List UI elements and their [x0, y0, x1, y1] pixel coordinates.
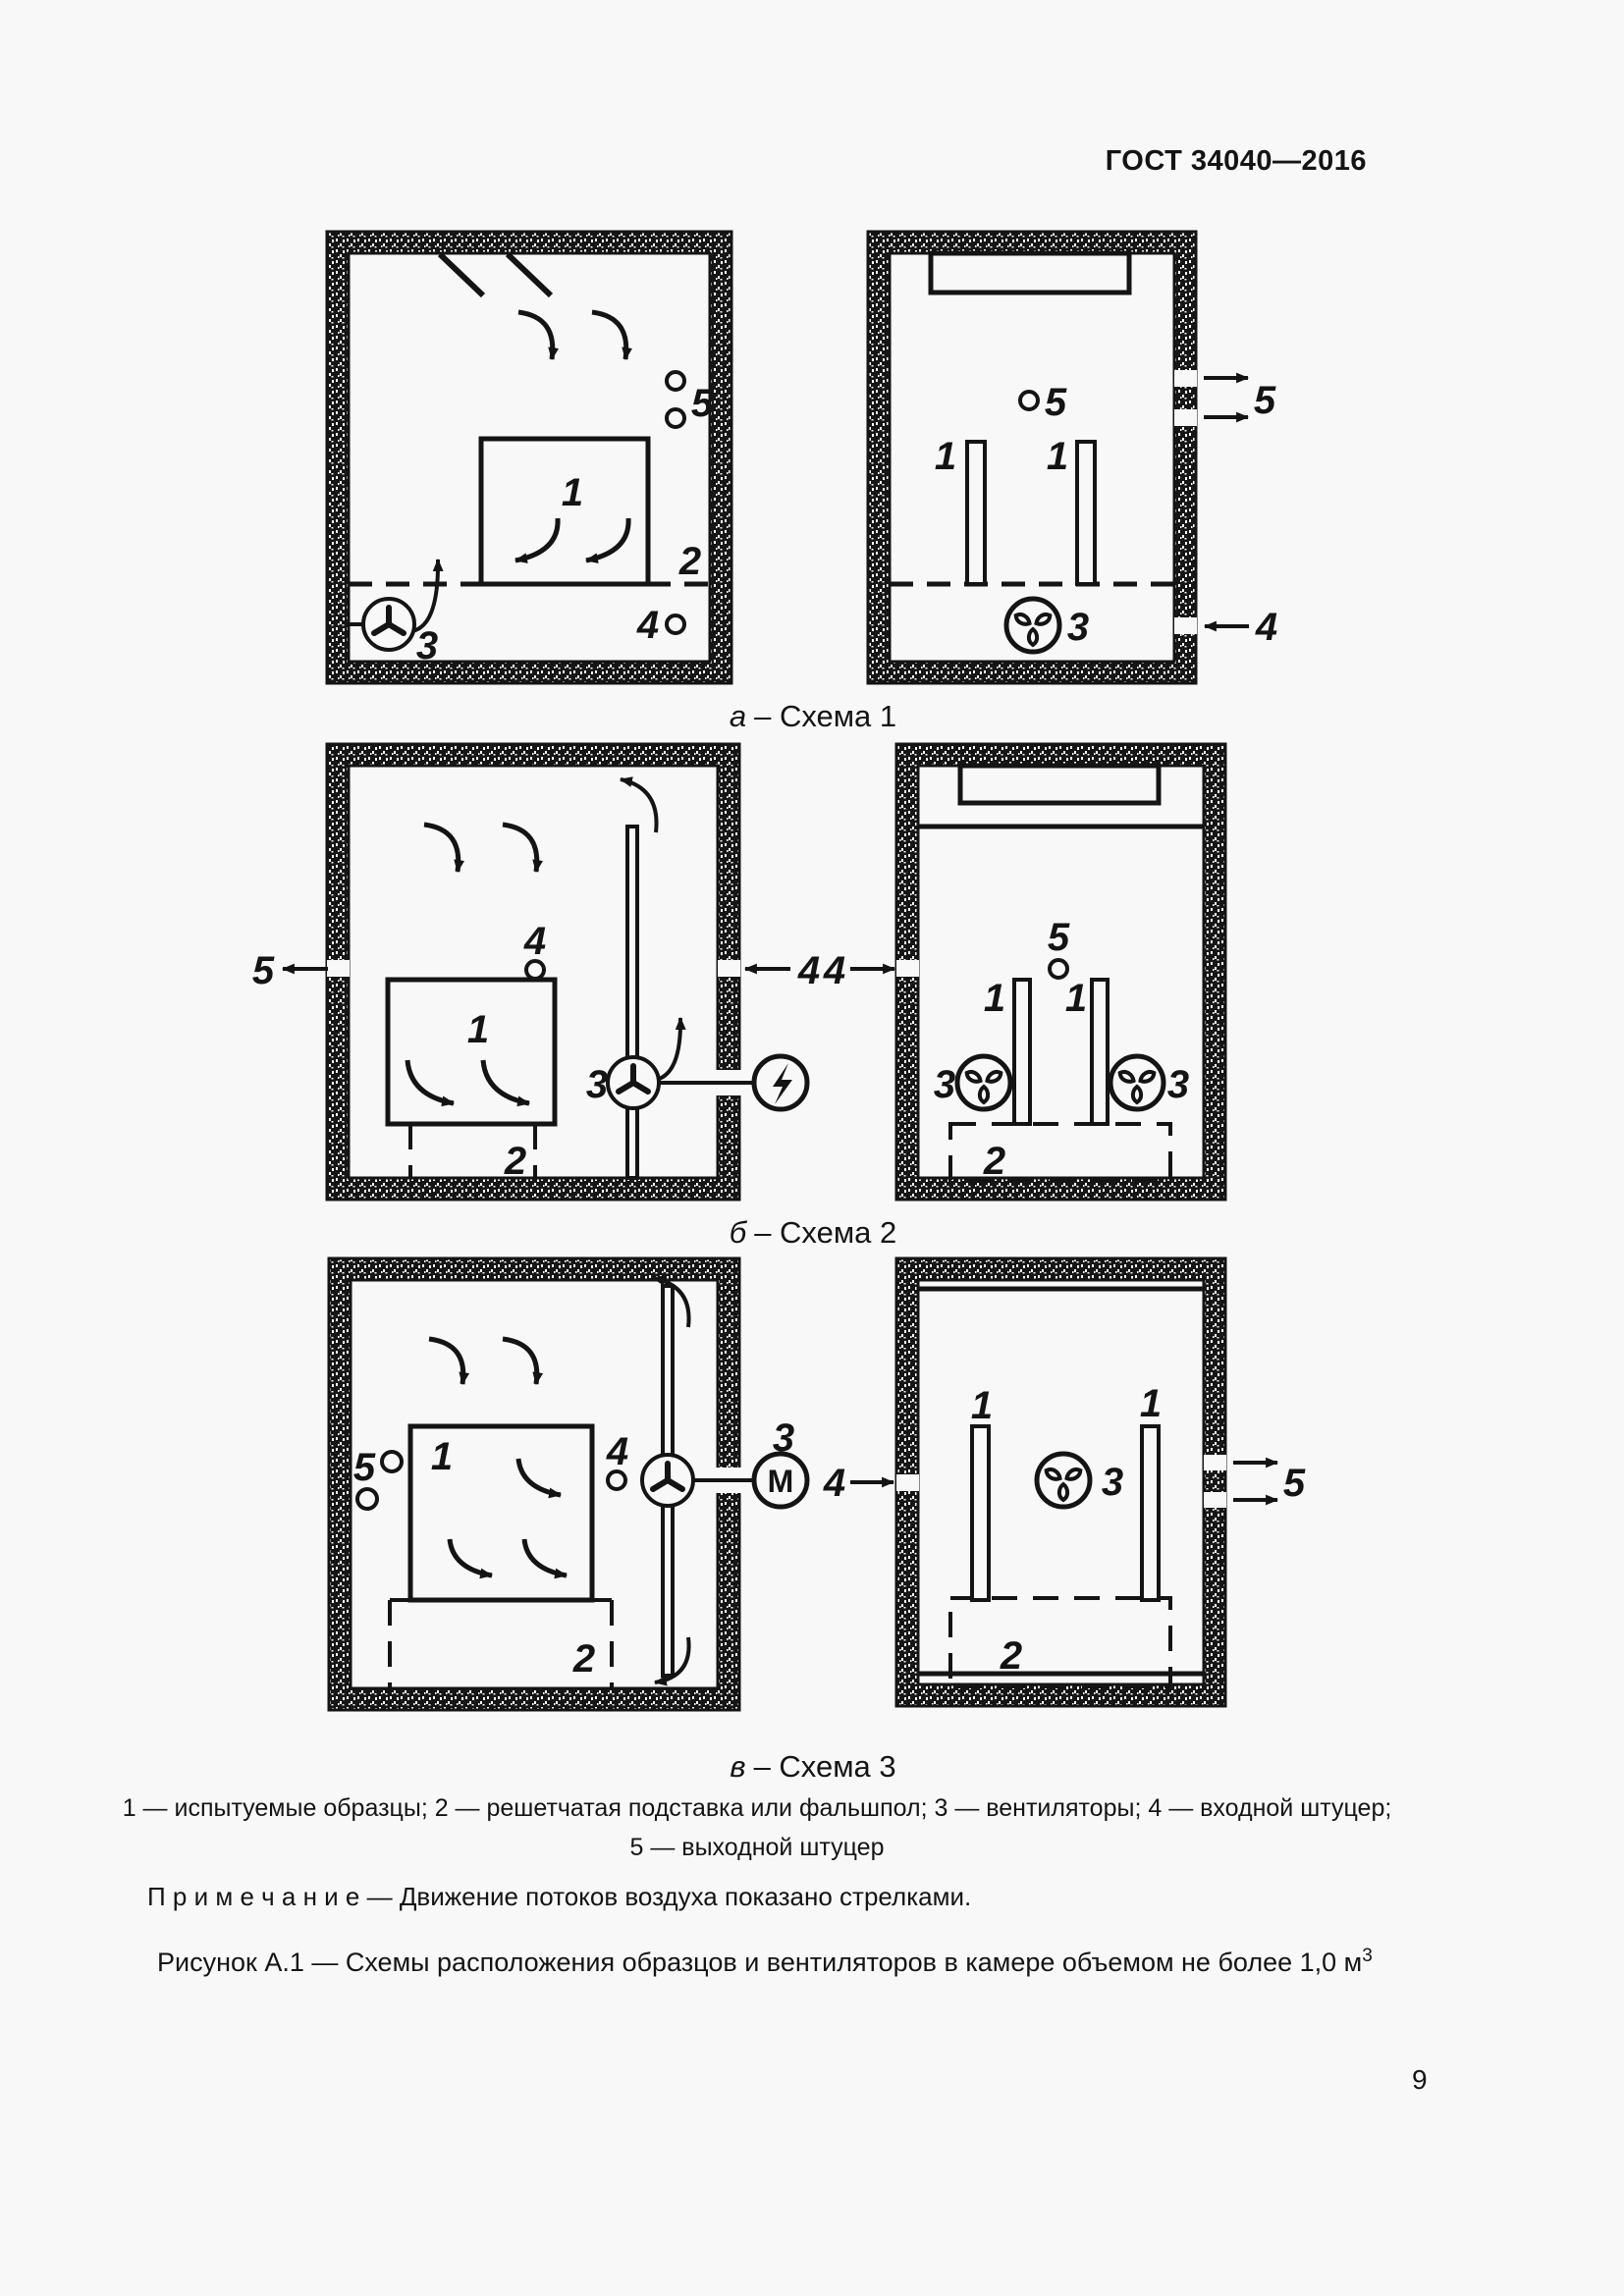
motor-icon	[754, 1056, 807, 1109]
chamber-scheme3-left: 5 1 2 4	[329, 1258, 893, 1710]
label-pos1: 1	[431, 1435, 453, 1478]
chamber-scheme1-right: 5 1 1 3 5 4	[868, 232, 1277, 683]
label-pos5: 5	[353, 1446, 376, 1489]
label-pos1: 1	[562, 471, 583, 514]
wall-port	[1174, 409, 1197, 426]
outlet-fitting-icon	[1050, 960, 1067, 978]
figure-a1-diagrams: 5 1 2 3 4 5 1 1	[0, 0, 1624, 1787]
label-pos3: 3	[586, 1063, 608, 1106]
sample-plate	[1014, 980, 1030, 1124]
caption-letter: в	[730, 1749, 745, 1784]
label-pos4: 4	[823, 1462, 845, 1505]
sample-plate	[1142, 1426, 1159, 1600]
fan-icon	[608, 1057, 659, 1108]
baffle	[960, 766, 1159, 803]
wall-port	[896, 1474, 919, 1491]
motor-icon: М	[754, 1454, 807, 1507]
label-pos1: 1	[467, 1008, 489, 1051]
figure-caption-superscript: 3	[1362, 1946, 1373, 1966]
label-pos3: 3	[773, 1416, 794, 1460]
label-pos4: 4	[636, 604, 659, 647]
outlet-fitting-icon	[1020, 392, 1038, 409]
caption-text: – Схема 1	[754, 699, 896, 733]
wall-port	[1204, 1455, 1226, 1470]
wall-port	[1174, 617, 1197, 634]
outlet-fitting-icon	[667, 409, 684, 427]
inlet-fitting-icon	[667, 615, 684, 633]
wall-port	[327, 960, 350, 977]
label-pos5: 5	[1048, 916, 1070, 959]
outlet-fitting-icon	[357, 1489, 377, 1509]
wall-port	[896, 960, 919, 977]
wall-port	[1174, 370, 1197, 387]
legend-line-2: 5 — выходной штуцер	[0, 1834, 1514, 1862]
chamber-scheme2-left: 4 1 2 3 5	[252, 744, 820, 1200]
chamber-scheme2-right: 5 2 1 1 3 3 4	[823, 744, 1225, 1200]
caption-text: – Схема 3	[754, 1749, 896, 1784]
outlet-fitting-icon	[382, 1452, 402, 1471]
label-pos5: 5	[691, 382, 714, 425]
label-pos5: 5	[1045, 381, 1067, 424]
caption-letter: а	[730, 699, 746, 733]
label-pos5: 5	[1254, 379, 1276, 422]
label-pos4: 4	[523, 920, 546, 963]
label-pos1: 1	[935, 435, 956, 478]
figure-caption: Рисунок А.1 — Схемы расположения образцо…	[157, 1946, 1373, 1978]
sample-plate	[972, 1426, 989, 1600]
sample-plate	[967, 442, 985, 584]
label-pos1: 1	[971, 1384, 993, 1427]
label-pos1: 1	[1047, 435, 1068, 478]
sample-plate	[1092, 980, 1108, 1124]
wall-port	[1204, 1492, 1226, 1508]
sample-plate	[1077, 442, 1095, 584]
page-number: 9	[1412, 2064, 1428, 2096]
label-motor: М	[768, 1464, 794, 1499]
label-pos4: 4	[823, 949, 845, 992]
label-pos3: 3	[1102, 1461, 1123, 1504]
label-pos4: 4	[1255, 606, 1277, 649]
partition	[627, 827, 637, 1178]
caption-scheme2: б– Схема 2	[126, 1215, 1500, 1251]
baffle	[931, 253, 1129, 293]
label-pos1: 1	[1140, 1382, 1162, 1425]
wall-port	[718, 960, 740, 977]
document-page: ГОСТ 34040—2016	[0, 0, 1624, 2296]
fan-icon	[1006, 599, 1059, 652]
caption-text: – Схема 2	[754, 1215, 896, 1250]
legend-line-1: 1 — испытуемые образцы; 2 — решетчатая п…	[0, 1794, 1514, 1823]
label-pos1: 1	[1065, 977, 1087, 1020]
label-pos4: 4	[797, 949, 820, 992]
fan-icon	[1110, 1056, 1164, 1109]
fan-icon	[642, 1455, 693, 1506]
label-pos2: 2	[572, 1637, 595, 1681]
fan-icon	[363, 599, 414, 650]
chamber-scheme1-left: 5 1 2 3 4	[327, 232, 731, 683]
label-pos3: 3	[416, 624, 438, 667]
label-pos2: 2	[678, 540, 701, 583]
label-pos3: 3	[934, 1063, 955, 1106]
caption-scheme1: а– Схема 1	[126, 699, 1500, 734]
label-pos2: 2	[504, 1140, 526, 1183]
outlet-fitting-icon	[667, 372, 684, 390]
label-pos2: 2	[983, 1140, 1005, 1183]
fan-icon	[957, 1056, 1010, 1109]
figure-legend: 1 — испытуемые образцы; 2 — решетчатая п…	[0, 1794, 1514, 1862]
label-pos1: 1	[984, 977, 1005, 1020]
label-pos2: 2	[1000, 1634, 1022, 1678]
caption-letter: б	[730, 1215, 746, 1250]
figure-caption-text: Рисунок А.1 — Схемы расположения образцо…	[157, 1948, 1362, 1977]
caption-scheme3: в– Схема 3	[126, 1749, 1500, 1785]
chamber-scheme3-right: 2 1 1 3 5	[896, 1258, 1306, 1706]
note-text: П р и м е ч а н и е — Движение потоков в…	[147, 1882, 971, 1912]
inlet-fitting-icon	[608, 1471, 625, 1489]
label-pos5: 5	[1283, 1462, 1306, 1505]
inlet-fitting-icon	[526, 961, 544, 979]
fan-icon	[1037, 1454, 1090, 1507]
label-pos5: 5	[252, 949, 275, 992]
label-pos3: 3	[1067, 606, 1089, 649]
label-pos4: 4	[606, 1430, 628, 1473]
label-pos3: 3	[1167, 1063, 1189, 1106]
sample-box	[388, 980, 555, 1124]
